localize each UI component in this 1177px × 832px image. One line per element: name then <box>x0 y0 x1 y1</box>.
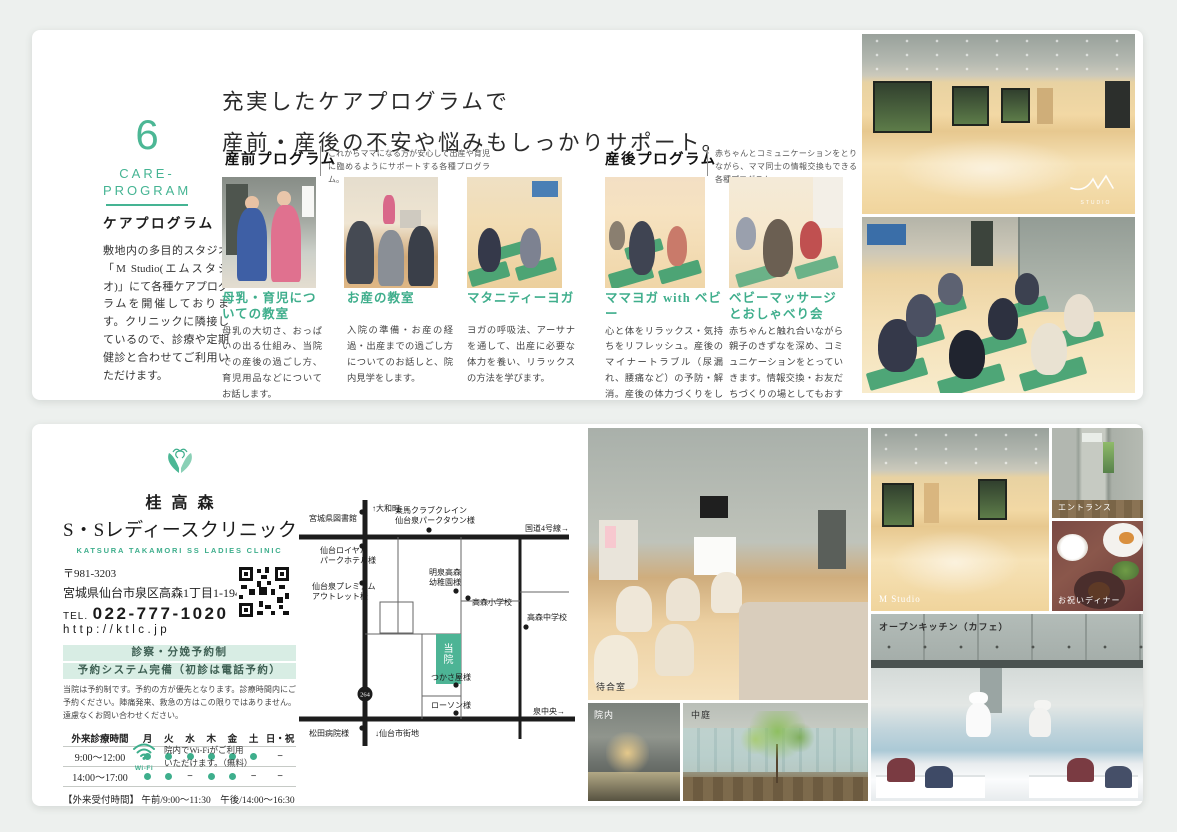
map-landmark-dot <box>523 624 528 629</box>
divider <box>707 146 708 176</box>
photo-studio-room: STUDIO <box>862 34 1135 214</box>
m-swoosh-icon <box>1067 173 1125 195</box>
badge-appointment: 診察・分娩予約制 <box>63 645 296 661</box>
wifi-note: 院内でWi-Fiがご利用 いただけます。（無料） <box>164 744 252 770</box>
map-label: 仙台ロイヤル <box>320 545 368 555</box>
decor <box>666 578 700 622</box>
decor <box>694 537 736 575</box>
map-label: 国道4号線→ <box>525 523 569 533</box>
open-dot <box>137 773 158 780</box>
photo-maternity-yoga <box>467 177 562 288</box>
decor <box>871 428 1049 472</box>
qr-code <box>237 565 291 619</box>
decor <box>736 217 757 250</box>
swan-logo-icon <box>161 446 199 476</box>
program-body: ヨガの呼吸法、アーサナを通して、出産に必要な体力を養い、リラックスの方法を学びま… <box>467 324 575 388</box>
map-label: つかさ屋様 <box>431 672 471 682</box>
decor <box>739 725 772 754</box>
decor <box>794 256 839 281</box>
program-body: 入院の準備・お産の経過・出産までの過ごし方についてのお話しと、院内見学をします。 <box>347 324 453 388</box>
closed-dash: − <box>179 771 200 782</box>
decor <box>532 181 559 197</box>
open-dot <box>201 773 222 780</box>
photo-courtyard: 中庭 <box>683 703 868 801</box>
decor <box>237 208 267 281</box>
program-body: 赤ちゃんと触れ合いながら親子のきずなを深め、コミュニケーションをとっていきます。… <box>729 325 843 401</box>
decor <box>378 230 404 286</box>
photo-birth-class <box>344 177 438 288</box>
decor <box>818 510 846 570</box>
open-dot <box>222 773 243 780</box>
decor <box>800 221 823 259</box>
decor <box>1103 442 1114 473</box>
section-title-en: CARE- PROGRAM <box>103 165 191 199</box>
decor <box>924 483 938 523</box>
clinic-name-en: KATSURA TAKAMORI SS LADIES CLINIC <box>63 546 296 555</box>
decor <box>813 177 843 228</box>
decor <box>889 530 1021 596</box>
window-shape <box>1001 88 1030 123</box>
program-column: ママヨガ with ベビー 心と体をリラックス・気持ちをリフレッシュ。産後のマイ… <box>605 290 723 400</box>
dinner-label: お祝いディナー <box>1058 595 1120 606</box>
care-program-page: 6 CARE- PROGRAM ケアプログラム 敷地内の多目的スタジオ「M St… <box>32 30 1143 400</box>
map-label: 仙台泉プレミアム <box>312 581 375 591</box>
section-title-ja: ケアプログラム <box>103 212 231 232</box>
postnatal-label: 産後プログラム <box>605 148 717 169</box>
map-label: 松田病院様 <box>309 728 349 738</box>
decor <box>988 298 1018 340</box>
map-landmark-dot <box>359 725 364 730</box>
decor <box>1067 758 1094 782</box>
wifi-icon: Wi-Fi <box>132 742 156 772</box>
window-shape <box>978 479 1007 520</box>
map-landmark-dot <box>453 682 458 687</box>
program-column: ベビーマッサージとおしゃべり会 赤ちゃんと触れ合いながら親子のきずなを深め、コミ… <box>729 290 843 400</box>
decor <box>763 219 793 277</box>
photo-open-kitchen: オープンキッチン（カフェ） <box>871 614 1143 801</box>
map-label: パークホテル様 <box>320 555 376 565</box>
map-label: 乗馬クラブクレイン <box>395 505 467 515</box>
decor <box>609 221 625 250</box>
program-title: お産の教室 <box>347 290 453 322</box>
decor <box>700 496 728 518</box>
program-title: ママヨガ with ベビー <box>605 290 723 323</box>
decor <box>971 221 993 267</box>
decor <box>862 34 1135 77</box>
decor <box>520 228 541 268</box>
photo-entrance: エントランス <box>1052 428 1143 518</box>
program-body: 母乳の大切さ、おっぱいの出る仕組み、当院での産後の過ごし方、育児用品などについて… <box>222 325 322 401</box>
section-number-block: 6 CARE- PROGRAM <box>103 116 191 206</box>
chef-figure <box>966 703 990 738</box>
map-label: ↓仙台市街地 <box>375 728 419 738</box>
decor <box>1105 766 1132 787</box>
decor <box>949 330 984 379</box>
program-title: 母乳・育児についての教室 <box>222 290 322 323</box>
table-rule <box>63 786 296 787</box>
decor <box>1082 433 1102 442</box>
clinic-name: S・Sレディースクリニック <box>63 515 296 542</box>
map-landmark-dot <box>426 527 431 532</box>
map-label: 宮城県図書館 <box>309 513 357 523</box>
divider <box>320 146 321 176</box>
decor <box>277 191 291 205</box>
program-column: お産の教室 入院の準備・お産の経過・出産までの過ごし方についてのお話しと、院内見… <box>347 290 453 388</box>
map-label: 高森中学校 <box>527 612 567 622</box>
decor <box>711 572 742 613</box>
decor <box>616 586 652 632</box>
photo-celebration-dinner: お祝いディナー <box>1052 521 1143 611</box>
decor <box>1037 88 1053 124</box>
map-landmark-dot <box>453 710 458 715</box>
decor <box>1064 294 1094 336</box>
program-body: 心と体をリラックス・気持ちをリフレッシュ。産後のマイナートラブル（尿漏れ、腰痛な… <box>605 325 723 401</box>
decor <box>408 226 434 286</box>
program-title: ベビーマッサージとおしゃべり会 <box>729 290 843 323</box>
wifi-info: Wi-Fi 院内でWi-Fiがご利用 いただけます。（無料） <box>132 742 252 772</box>
closed-dash: − <box>264 771 296 782</box>
decor <box>302 186 314 217</box>
decor <box>925 766 952 787</box>
decor <box>606 732 648 773</box>
decor <box>1105 81 1130 128</box>
decor <box>629 221 655 274</box>
decor <box>895 138 1081 199</box>
map-label: ローソン様 <box>431 700 471 710</box>
program-column: マタニティーヨガ ヨガの呼吸法、アーサナを通して、出産に必要な体力を養い、リラッ… <box>467 290 575 388</box>
closed-dash: − <box>264 751 296 762</box>
decor <box>783 723 816 752</box>
waiting-room-label: 待合室 <box>596 680 626 693</box>
m-studio-watermark: STUDIO <box>1067 173 1125 206</box>
photo-breastfeeding-class <box>222 177 316 288</box>
chef-figure <box>1029 708 1051 737</box>
reception-hours: 【外来受付時間】 午前/9:00～11:30 午後/14:00～16:30 <box>63 792 296 806</box>
map-landmark-dot <box>359 509 364 514</box>
photo-m-studio: M Studio <box>871 428 1049 611</box>
map-label: 幼稚園様 <box>429 577 461 587</box>
clinic-map-label: 当院 <box>444 642 454 666</box>
decor <box>605 526 616 548</box>
decor <box>346 221 374 283</box>
section-index-column: 6 CARE- PROGRAM ケアプログラム 敷地内の多目的スタジオ「M St… <box>103 116 231 386</box>
decor <box>906 294 936 336</box>
courtyard-label: 中庭 <box>691 708 711 721</box>
map-landmark-dot <box>465 595 470 600</box>
section-description: 敷地内の多目的スタジオ「M Studio(エムスタジオ)」にて各種ケアプログラム… <box>103 243 229 386</box>
photo-waiting-room: 待合室 <box>588 428 868 700</box>
decor <box>867 224 905 245</box>
decor <box>478 228 501 272</box>
program-title: マタニティーヨガ <box>467 290 575 322</box>
section-underline <box>106 204 188 206</box>
badge-reservation-system: 予約システム完備（初診は電話予約） <box>63 663 296 679</box>
photo-yoga-class <box>862 217 1135 393</box>
decor <box>271 205 301 283</box>
map-landmark-dot <box>453 588 458 593</box>
closed-dash: − <box>243 771 264 782</box>
window-shape <box>873 81 932 134</box>
decor <box>383 195 394 224</box>
decor <box>655 624 694 676</box>
program-column: 母乳・育児についての教室 母乳の大切さ、おっぱいの出る仕組み、当院での産後の過ご… <box>222 290 322 400</box>
photo-mama-yoga <box>605 177 705 288</box>
website-url: http://ktlc.jp <box>63 624 296 636</box>
map-label: 高森小学校 <box>472 597 512 607</box>
window-shape <box>952 86 989 126</box>
decor <box>1057 534 1088 561</box>
open-dot <box>158 773 179 780</box>
map-label: 仙台泉パークタウン様 <box>395 515 475 525</box>
page-number: 6 <box>103 116 191 154</box>
decor <box>938 273 963 305</box>
window-shape <box>882 483 914 527</box>
decor <box>871 644 1143 650</box>
reservation-note: 当院は予約制です。予約の方が優先となります。診療時間内にご予約ください。陣痛発来… <box>63 684 296 723</box>
map-label: 明泉高森 <box>429 567 461 577</box>
brochure-spread: { "colors": { "accent_green": "#3EAE8C",… <box>0 0 1177 832</box>
access-map: 当院 264 宮城県図書館↑大和町乗馬クラブクレイン仙台泉パークタウン様国道4号… <box>293 484 575 752</box>
photo-clinic-interior: 院内 <box>588 703 680 801</box>
decor <box>588 772 680 801</box>
decor <box>871 660 1143 668</box>
m-studio-label: M Studio <box>879 594 921 604</box>
decor <box>667 226 687 266</box>
decor <box>871 668 1143 801</box>
clinic-logo <box>63 446 296 481</box>
photo-baby-massage <box>729 177 843 288</box>
decor <box>1015 273 1040 305</box>
kitchen-label: オープンキッチン（カフェ） <box>879 620 1008 633</box>
svg-text:264: 264 <box>360 692 371 699</box>
clinic-info-page: 桂高森 S・Sレディースクリニック KATSURA TAKAMORI SS LA… <box>32 424 1143 806</box>
map-label: アウトレット様 <box>312 591 368 601</box>
map-label: 泉中央→ <box>533 706 565 716</box>
interior-label: 院内 <box>594 708 614 721</box>
decor <box>739 602 868 700</box>
decor <box>887 758 914 782</box>
decor <box>1031 323 1066 376</box>
clinic-name-kanji: 桂高森 <box>63 489 296 513</box>
entrance-label: エントランス <box>1058 502 1112 513</box>
